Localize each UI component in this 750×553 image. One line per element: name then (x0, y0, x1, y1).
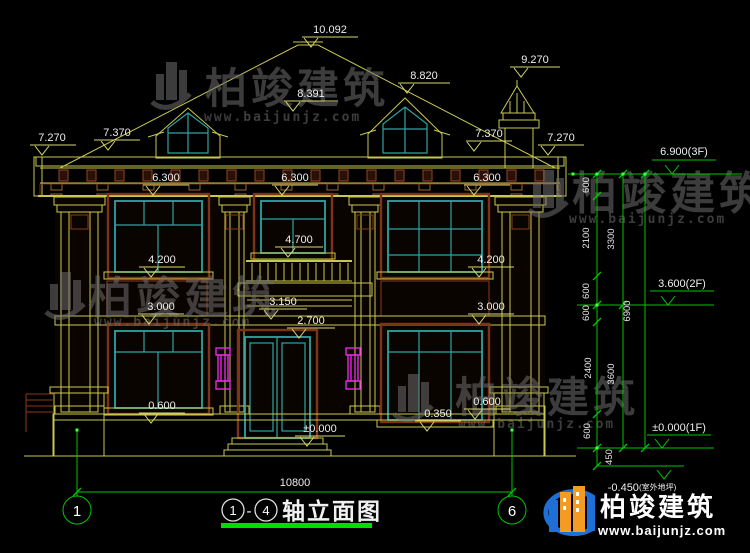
svg-text:4.200: 4.200 (148, 254, 176, 266)
entrance-door (238, 330, 317, 438)
footer-url: www.baijunjz.com (597, 523, 726, 538)
svg-text:2.700: 2.700 (297, 315, 325, 327)
footer-logo: 柏竣建筑 www.baijunjz.com (546, 486, 726, 538)
svg-text:0.600: 0.600 (148, 400, 176, 412)
vdim-450: 450 (604, 449, 615, 465)
watermark-url: www.baijunjz.com (569, 212, 726, 227)
svg-text:3.600(2F): 3.600(2F) (658, 278, 706, 290)
svg-text:7.370: 7.370 (103, 127, 131, 139)
axis-bubble-right: 6 (498, 496, 526, 524)
svg-text:±0.000(1F): ±0.000(1F) (652, 422, 706, 434)
vdim-600-sill: 600 (581, 283, 592, 299)
vdim-3600: 3600 (606, 363, 617, 384)
svg-text:7.270: 7.270 (547, 132, 575, 144)
svg-text:1: 1 (73, 503, 81, 520)
elevation-drawing: 柏竣建筑 www.baijunjz.com 柏竣建筑 www.baijunjz.… (0, 0, 750, 553)
svg-text:6.300: 6.300 (473, 172, 501, 184)
vdim-2400: 2400 (583, 357, 594, 378)
vdim-6900: 6900 (622, 300, 633, 321)
watermark-url: www.baijunjz.com (204, 110, 361, 125)
svg-text:0.600: 0.600 (473, 396, 501, 408)
level-mark-2f: 3.600(2F) (650, 278, 714, 305)
vdim-2100: 2100 (581, 227, 592, 248)
footer-brand: 柏竣建筑 (600, 492, 716, 522)
elevation-mark-eave-left: 7.270 (30, 132, 76, 155)
svg-text:6: 6 (508, 503, 516, 520)
outdoor-level-note: (室外地坪) (639, 482, 677, 492)
elevation-mark-eave-right: 7.270 (538, 132, 584, 155)
svg-text:6.300: 6.300 (152, 172, 180, 184)
svg-text:3.150: 3.150 (269, 296, 297, 308)
svg-text:6.900(3F): 6.900(3F) (660, 146, 708, 158)
title-block: 1 - 4 轴立面图 (221, 498, 382, 528)
chimney (499, 80, 539, 168)
vdim-3300: 3300 (606, 228, 617, 249)
svg-text:±0.000: ±0.000 (303, 423, 337, 435)
svg-text:3.000: 3.000 (147, 301, 175, 313)
svg-text:3.000: 3.000 (477, 301, 505, 313)
svg-text:4.700: 4.700 (285, 234, 313, 246)
vdim-600-base: 600 (582, 423, 593, 439)
svg-text:0.350: 0.350 (424, 408, 452, 420)
cad-drawing-canvas: 柏竣建筑 www.baijunjz.com 柏竣建筑 www.baijunjz.… (0, 0, 750, 553)
title-underline (221, 523, 372, 528)
svg-text:4.200: 4.200 (477, 254, 505, 266)
svg-text:8.391: 8.391 (297, 88, 325, 100)
svg-text:10.092: 10.092 (313, 24, 347, 36)
level-mark-outdoor: -0.450(室外地坪) (608, 470, 677, 494)
watermark-right: 柏竣建筑 www.baijunjz.com (529, 168, 750, 227)
watermark-url: www.baijunjz.com (94, 315, 251, 330)
title-axis-to: 4 (262, 503, 269, 518)
title-axis-separator: - (247, 503, 252, 520)
side-planter (26, 394, 54, 432)
total-width-dim: 10800 (280, 477, 311, 489)
elevation-mark-chimney: 9.270 (510, 54, 560, 77)
level-mark-1f: ±0.000(1F) (647, 422, 711, 448)
svg-text:8.820: 8.820 (410, 70, 438, 82)
watermark-logo-icon (152, 62, 190, 107)
svg-text:6.300: 6.300 (281, 172, 309, 184)
svg-text:7.270: 7.270 (38, 132, 66, 144)
svg-text:9.270: 9.270 (521, 54, 549, 66)
drawing-title: 轴立面图 (282, 498, 382, 524)
elevation-mark-dormer-right: 8.820 (398, 70, 450, 93)
title-axis-from: 1 (229, 503, 236, 518)
axis-bubble-left: 1 (63, 496, 91, 524)
svg-text:7.370: 7.370 (475, 128, 503, 140)
elevation-mark-ridge: 10.092 (302, 24, 358, 47)
vdim-600-eave: 600 (581, 177, 592, 193)
vdim-600-floor2: 600 (581, 305, 592, 321)
elevation-mark-floor: ±0.000 (295, 423, 345, 446)
